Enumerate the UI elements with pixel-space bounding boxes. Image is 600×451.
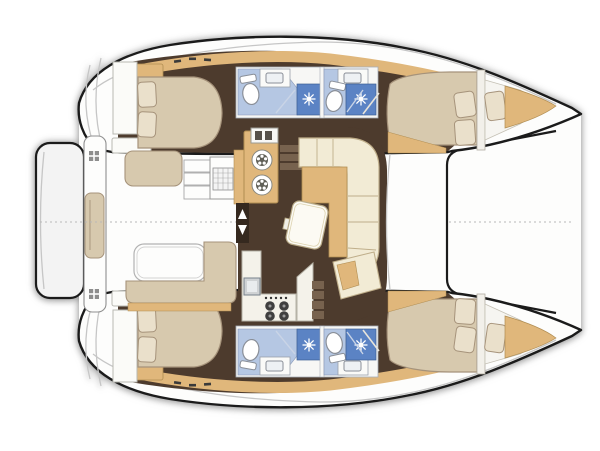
transom-bench-cushion bbox=[85, 193, 104, 258]
companionway-entry bbox=[236, 203, 249, 243]
head-partition-wall bbox=[320, 67, 324, 118]
galley-burner bbox=[252, 150, 272, 170]
cockpit-module-grill bbox=[210, 157, 236, 199]
shower-spray bbox=[303, 93, 316, 106]
sink-bowl bbox=[255, 131, 262, 140]
sink-inner bbox=[247, 281, 257, 292]
pillow bbox=[137, 112, 156, 138]
salon bbox=[234, 127, 387, 321]
cockpit-table bbox=[134, 244, 206, 281]
helm-steps bbox=[184, 160, 210, 199]
pillow bbox=[137, 82, 156, 108]
sink-basin bbox=[266, 73, 283, 83]
forward-bulkhead bbox=[477, 70, 485, 150]
sink-bowl bbox=[265, 131, 272, 140]
sink-basin bbox=[344, 73, 361, 83]
wardrobe bbox=[113, 62, 137, 134]
catamaran-floor-plan bbox=[0, 0, 600, 451]
floor-plan-canvas bbox=[0, 0, 600, 451]
boat bbox=[36, 37, 581, 408]
swim-platform bbox=[36, 143, 84, 298]
pillow bbox=[453, 91, 476, 119]
forepeak-cushion bbox=[484, 91, 507, 121]
cockpit-seat-port bbox=[125, 151, 182, 186]
pillow bbox=[454, 119, 476, 145]
cockpit-deck-strip bbox=[128, 303, 231, 311]
galley-burner bbox=[252, 175, 272, 195]
